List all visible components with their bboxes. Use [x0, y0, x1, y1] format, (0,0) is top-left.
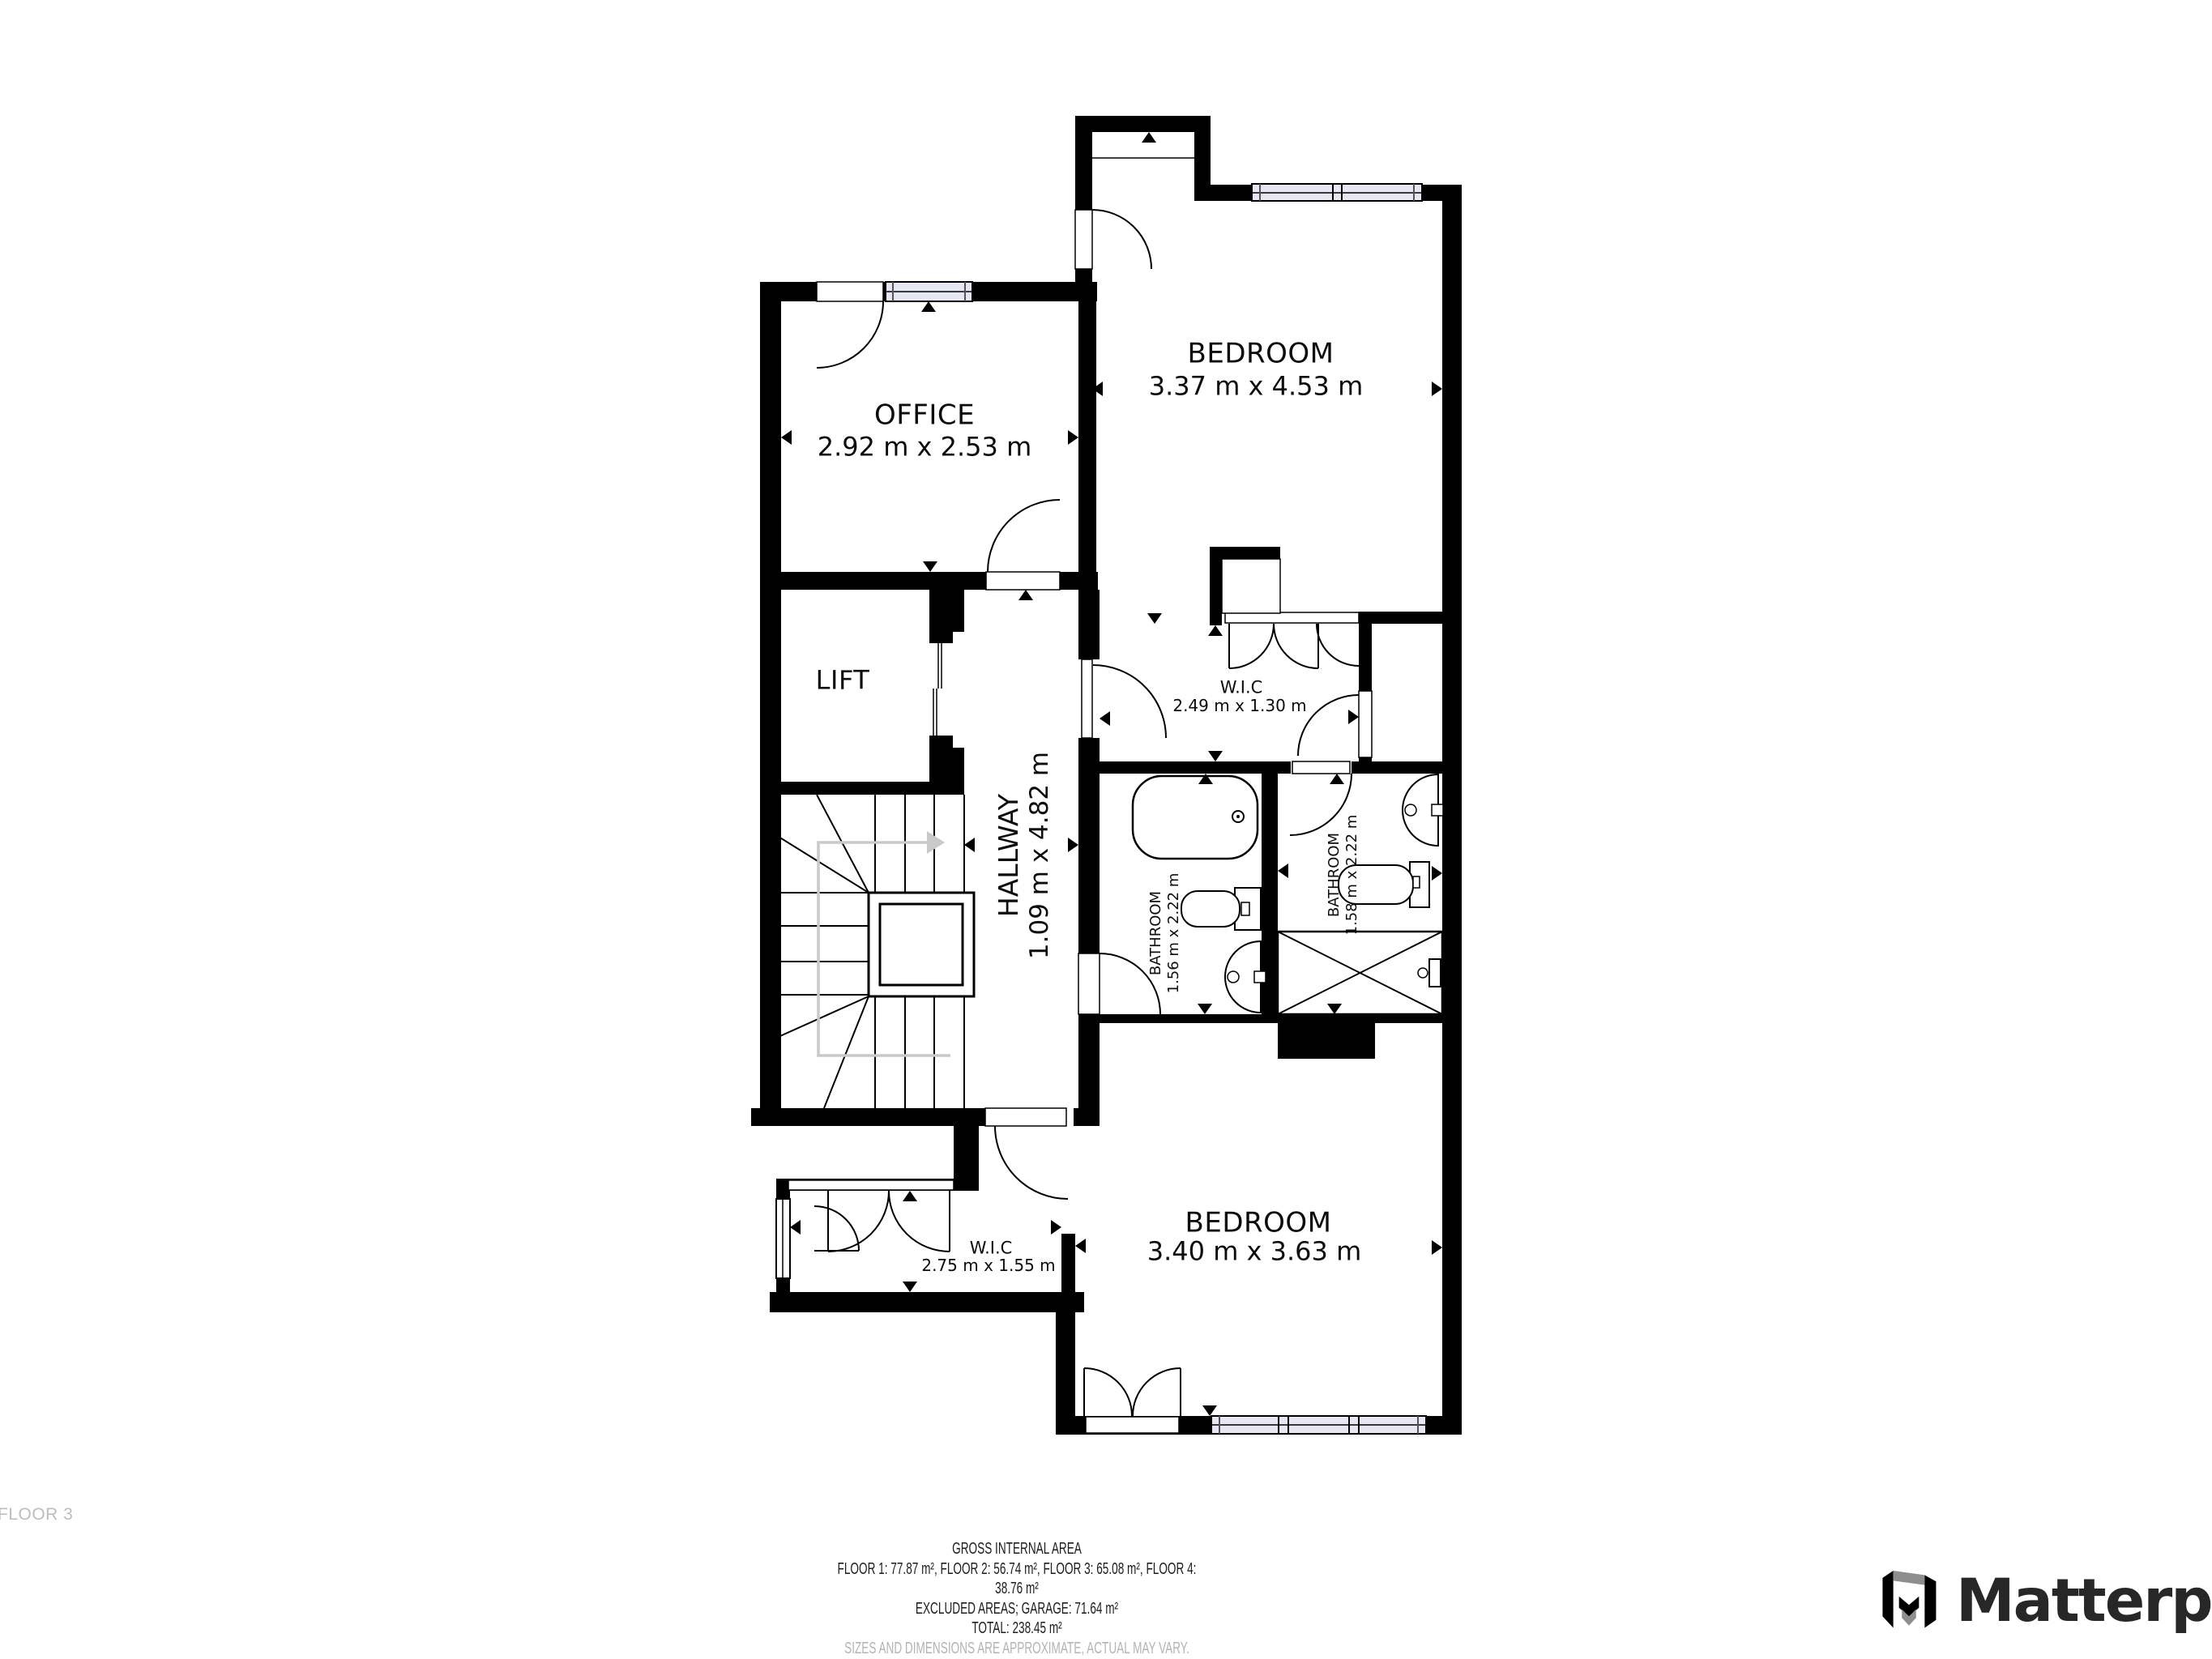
measure-arrow-icon — [1068, 838, 1078, 852]
measure-arrow-icon — [1432, 866, 1442, 881]
measure-arrow-icon — [1208, 751, 1223, 761]
wall-pocket-upper — [1359, 624, 1372, 691]
floor-areas-line: FLOOR 1: 77.87 m², FLOOR 2: 56.74 m², FL… — [824, 1559, 1210, 1599]
corridor-door-arc — [995, 1126, 1068, 1199]
measure-arrow-icon — [790, 1220, 801, 1235]
wall-corridor-left — [954, 1126, 979, 1181]
measure-arrow-icon — [1142, 132, 1156, 143]
measure-arrow-icon — [1075, 1239, 1086, 1253]
bath-right-door-gap — [1292, 761, 1350, 774]
hall-wic-door-leaf — [1082, 659, 1092, 738]
office-label: OFFICE — [874, 400, 975, 430]
measure-arrow-icon — [1100, 711, 1110, 726]
wall-niche-left — [1210, 547, 1222, 625]
wall-hall-right-c — [1078, 763, 1100, 953]
pocket-door-slot — [1359, 691, 1372, 757]
wic-pocket-door-arc — [1298, 695, 1359, 756]
wic-top-label: W.I.C — [1220, 678, 1263, 697]
wall-bath-top-right — [1352, 761, 1462, 774]
bedroom-top-dims: 3.37 m x 4.53 m — [1149, 372, 1363, 400]
floor-indicator: FLOOR 3 — [0, 1505, 73, 1525]
wall-protrusion-right — [1194, 130, 1211, 193]
matterport-branding: Matterport — [1873, 1563, 2212, 1638]
stair-well-outer — [869, 893, 974, 996]
wall-block-below-shower — [1278, 1023, 1375, 1059]
wall-lift-block-a — [929, 586, 964, 632]
wic-bottom-dims: 2.75 m x 1.55 m — [921, 1256, 1055, 1274]
measure-arrow-icon — [781, 430, 792, 445]
wall-protrusion-left-a — [1075, 116, 1092, 210]
measure-arrow-icon — [1330, 774, 1344, 784]
stair-treads-bottom — [875, 996, 964, 1108]
office-entry-gap — [817, 282, 883, 301]
bathtub-icon — [1133, 776, 1258, 859]
measure-arrow-icon — [1018, 590, 1033, 600]
toilet-left-icon — [1181, 888, 1261, 930]
gross-area-title: GROSS INTERNAL AREA — [824, 1539, 1210, 1559]
stair-treads-left — [781, 893, 869, 995]
measure-arrow-icon — [923, 561, 937, 572]
wic-top-dims: 2.49 m x 1.30 m — [1172, 697, 1306, 714]
measure-arrow-icon — [1348, 710, 1359, 724]
french-door-left — [1084, 1368, 1132, 1416]
measure-arrow-icon — [1327, 1004, 1342, 1014]
wall-lift-block-c — [929, 736, 953, 748]
wall-office-bedroom-divider — [1078, 285, 1096, 590]
area-summary: GROSS INTERNAL AREA FLOOR 1: 77.87 m², F… — [824, 1539, 1210, 1658]
wall-hall-end — [1074, 1108, 1100, 1126]
measure-arrow-icon — [903, 1191, 917, 1201]
sink-left-icon — [1225, 941, 1266, 1013]
disclaimer-line: SIZES AND DIMENSIONS ARE APPROXIMATE, AC… — [824, 1639, 1210, 1659]
measure-arrow-icon — [1068, 430, 1078, 445]
measure-arrow-icon — [1278, 864, 1288, 878]
lift-sliding-door — [933, 643, 942, 736]
sink-right-icon — [1403, 774, 1443, 846]
measure-arrow-icon — [1198, 1004, 1212, 1014]
measure-arrow-icon — [1432, 1240, 1442, 1255]
bedroom-bottom-label: BEDROOM — [1185, 1208, 1332, 1238]
wall-step-horizontal — [1194, 185, 1252, 201]
measure-arrow-icon — [1202, 1405, 1217, 1416]
bathroom-left-name: BATHROOM — [1147, 873, 1165, 994]
bedroom-top-window — [1252, 184, 1422, 201]
measure-arrow-icon — [1051, 1220, 1061, 1235]
wall-hall-right-a — [1078, 590, 1100, 659]
corridor-door-gap — [985, 1108, 1066, 1126]
wall-bedb-left — [1056, 1292, 1075, 1432]
stair-well-inner — [880, 904, 963, 985]
wic-top-closet-recess — [1225, 612, 1359, 623]
wicb-closet-door-right — [889, 1191, 950, 1252]
matterport-wordmark: Matterport — [1956, 1567, 2212, 1636]
wall-lift-block-b — [929, 632, 953, 643]
wic-closet-door-right — [1274, 624, 1318, 668]
wall-hall-right-b — [1078, 738, 1100, 763]
hallway-label: HALLWAY 1.09 m x 4.82 m — [993, 752, 1055, 959]
french-door-right — [1133, 1368, 1181, 1416]
bedroom-top-label: BEDROOM — [1188, 339, 1334, 369]
office-window — [886, 282, 972, 301]
bathroom-right-name: BATHROOM — [1326, 815, 1343, 936]
hallway-name: HALLWAY — [993, 752, 1024, 959]
wall-lift-bottom — [765, 782, 964, 795]
wicb-small-door — [814, 1206, 859, 1251]
wall-protrusion-left-b — [1075, 269, 1092, 285]
floorplan-page: OFFICE 2.92 m x 2.53 m BEDROOM 3.37 m x … — [0, 0, 2212, 1659]
matterport-logo-icon — [1873, 1563, 1945, 1638]
office-hall-door-arc — [988, 500, 1060, 572]
wall-protrusion-top — [1075, 116, 1211, 132]
wall-bath-bottom — [1100, 1014, 1462, 1023]
bath-left-door-gap — [1078, 953, 1100, 1014]
floor-plan-drawing — [0, 0, 2212, 1659]
wall-right-exterior — [1442, 185, 1462, 1435]
office-entry-door-arc — [817, 301, 883, 368]
wall-bath-top-left — [1100, 761, 1291, 774]
measure-arrow-icon — [1208, 625, 1223, 636]
measure-arrow-icon — [1432, 382, 1442, 396]
wall-wicb-bottom — [770, 1292, 1084, 1312]
bedroom-entry-gap — [1075, 210, 1092, 269]
bedroom-bottom-window — [1211, 1416, 1426, 1434]
total-area-line: TOTAL: 238.45 m² — [824, 1618, 1210, 1639]
wall-left-exterior — [760, 282, 781, 1126]
wicb-closet-recess — [788, 1180, 954, 1190]
stair-guide-arrow-icon — [927, 831, 945, 854]
hall-wic-door-arc — [1093, 665, 1166, 738]
excluded-areas-line: EXCLUDED AREAS; GARAGE: 71.64 m² — [824, 1599, 1210, 1619]
wall-stairs-bottom — [751, 1108, 985, 1126]
measure-arrow-icon — [921, 301, 936, 312]
measure-arrow-icon — [903, 1282, 917, 1292]
bathroom-right-dims: 1.58 m x 2.22 m — [1343, 815, 1361, 936]
shower-icon — [1278, 932, 1442, 1014]
hallway-dims: 1.09 m x 4.82 m — [1024, 752, 1055, 959]
wic-closet-door-left — [1229, 624, 1274, 668]
french-door-panel — [1086, 1417, 1179, 1433]
wall-hall-right-d — [1078, 1014, 1100, 1108]
bedroom-bottom-dims: 3.40 m x 3.63 m — [1147, 1237, 1361, 1265]
bathroom-left-dims: 1.56 m x 2.22 m — [1165, 873, 1183, 994]
wall-wic-top-right — [1359, 612, 1462, 624]
measure-arrow-icon — [964, 838, 975, 852]
office-hall-door-gap — [986, 572, 1060, 590]
staircase — [766, 795, 974, 1108]
bathroom-left-label: BATHROOM 1.56 m x 2.22 m — [1147, 873, 1183, 994]
bathroom-right-label: BATHROOM 1.58 m x 2.22 m — [1326, 815, 1361, 936]
bedroom-closet-niche — [1222, 559, 1280, 613]
wicb-window — [776, 1199, 790, 1278]
office-dims: 2.92 m x 2.53 m — [818, 433, 1031, 461]
lift-label: LIFT — [816, 666, 870, 694]
wall-niche-top — [1222, 547, 1280, 559]
bedroom-entry-door-arc — [1092, 210, 1151, 269]
wic-closet-door-extra — [1317, 624, 1359, 666]
measure-arrow-icon — [1147, 613, 1162, 624]
